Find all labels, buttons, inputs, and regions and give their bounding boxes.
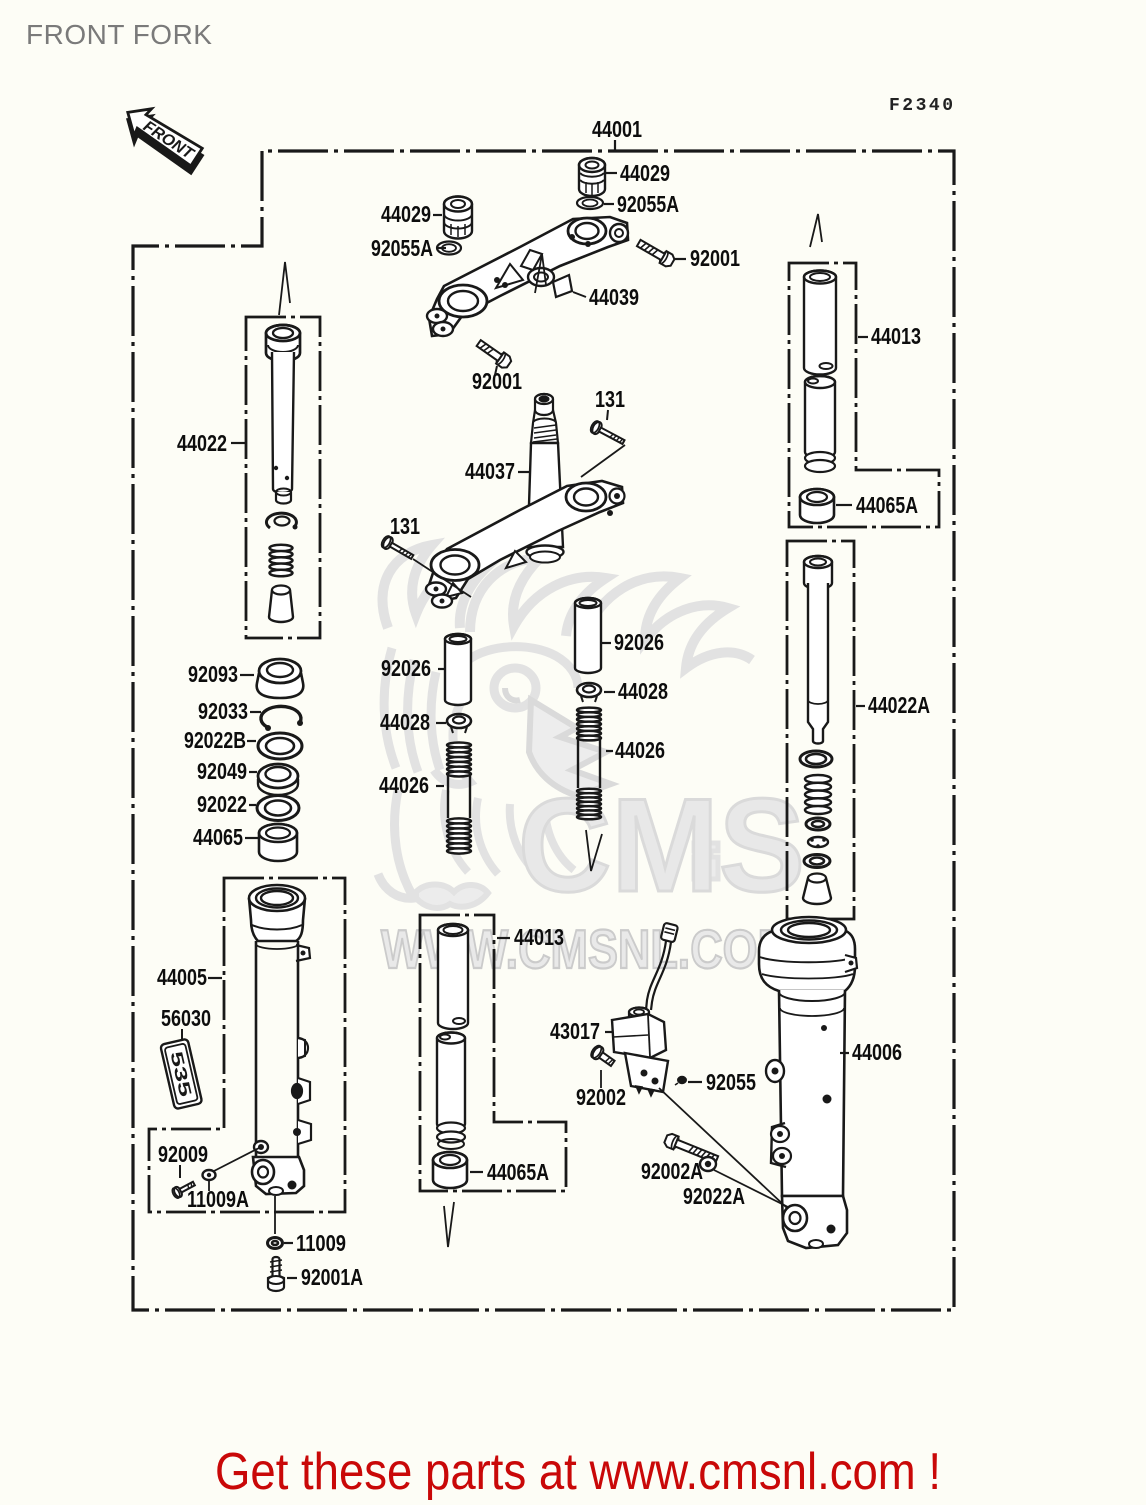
svg-text:92055: 92055 <box>706 1069 756 1095</box>
svg-text:44001: 44001 <box>592 116 642 142</box>
svg-text:44026: 44026 <box>615 737 665 763</box>
svg-text:92002: 92002 <box>576 1084 626 1110</box>
svg-text:92055A: 92055A <box>371 235 433 261</box>
svg-text:44065A: 44065A <box>856 492 918 518</box>
svg-text:43017: 43017 <box>550 1018 600 1044</box>
svg-text:44037: 44037 <box>465 458 515 484</box>
svg-text:92049: 92049 <box>197 758 247 784</box>
svg-text:44005: 44005 <box>157 964 207 990</box>
svg-text:92002A: 92002A <box>641 1158 703 1184</box>
svg-text:92022A: 92022A <box>683 1183 745 1209</box>
svg-text:92033: 92033 <box>198 698 248 724</box>
svg-text:44022: 44022 <box>177 430 227 456</box>
svg-text:131: 131 <box>390 513 420 539</box>
svg-text:44013: 44013 <box>871 323 921 349</box>
svg-text:131: 131 <box>595 386 625 412</box>
svg-text:92022B: 92022B <box>184 727 246 753</box>
svg-text:92009: 92009 <box>158 1141 208 1167</box>
svg-text:44022A: 44022A <box>868 692 930 718</box>
svg-text:44029: 44029 <box>381 201 431 227</box>
svg-text:44039: 44039 <box>589 284 639 310</box>
svg-text:92001: 92001 <box>472 368 522 394</box>
svg-text:F2340: F2340 <box>889 96 956 116</box>
svg-text:44006: 44006 <box>852 1039 902 1065</box>
svg-text:44065: 44065 <box>193 824 243 850</box>
svg-text:92022: 92022 <box>197 791 247 817</box>
svg-text:44029: 44029 <box>620 160 670 186</box>
svg-text:44028: 44028 <box>618 678 668 704</box>
svg-text:44065A: 44065A <box>487 1159 549 1185</box>
svg-text:56030: 56030 <box>161 1005 211 1031</box>
svg-text:92026: 92026 <box>381 655 431 681</box>
svg-text:Get these parts at www.cmsnl.c: Get these parts at www.cmsnl.com ! <box>215 1443 941 1500</box>
svg-text:44013: 44013 <box>514 924 564 950</box>
svg-text:92026: 92026 <box>614 629 664 655</box>
svg-text:FRONT FORK: FRONT FORK <box>26 19 212 50</box>
svg-text:11009: 11009 <box>296 1230 346 1256</box>
svg-text:CMS: CMS <box>518 772 805 920</box>
svg-text:92055A: 92055A <box>617 191 679 217</box>
svg-text:11009A: 11009A <box>187 1186 249 1212</box>
svg-text:92001: 92001 <box>690 245 740 271</box>
svg-text:44028: 44028 <box>380 709 430 735</box>
svg-text:44026: 44026 <box>379 772 429 798</box>
svg-text:92093: 92093 <box>188 661 238 687</box>
svg-text:92001A: 92001A <box>301 1264 363 1290</box>
